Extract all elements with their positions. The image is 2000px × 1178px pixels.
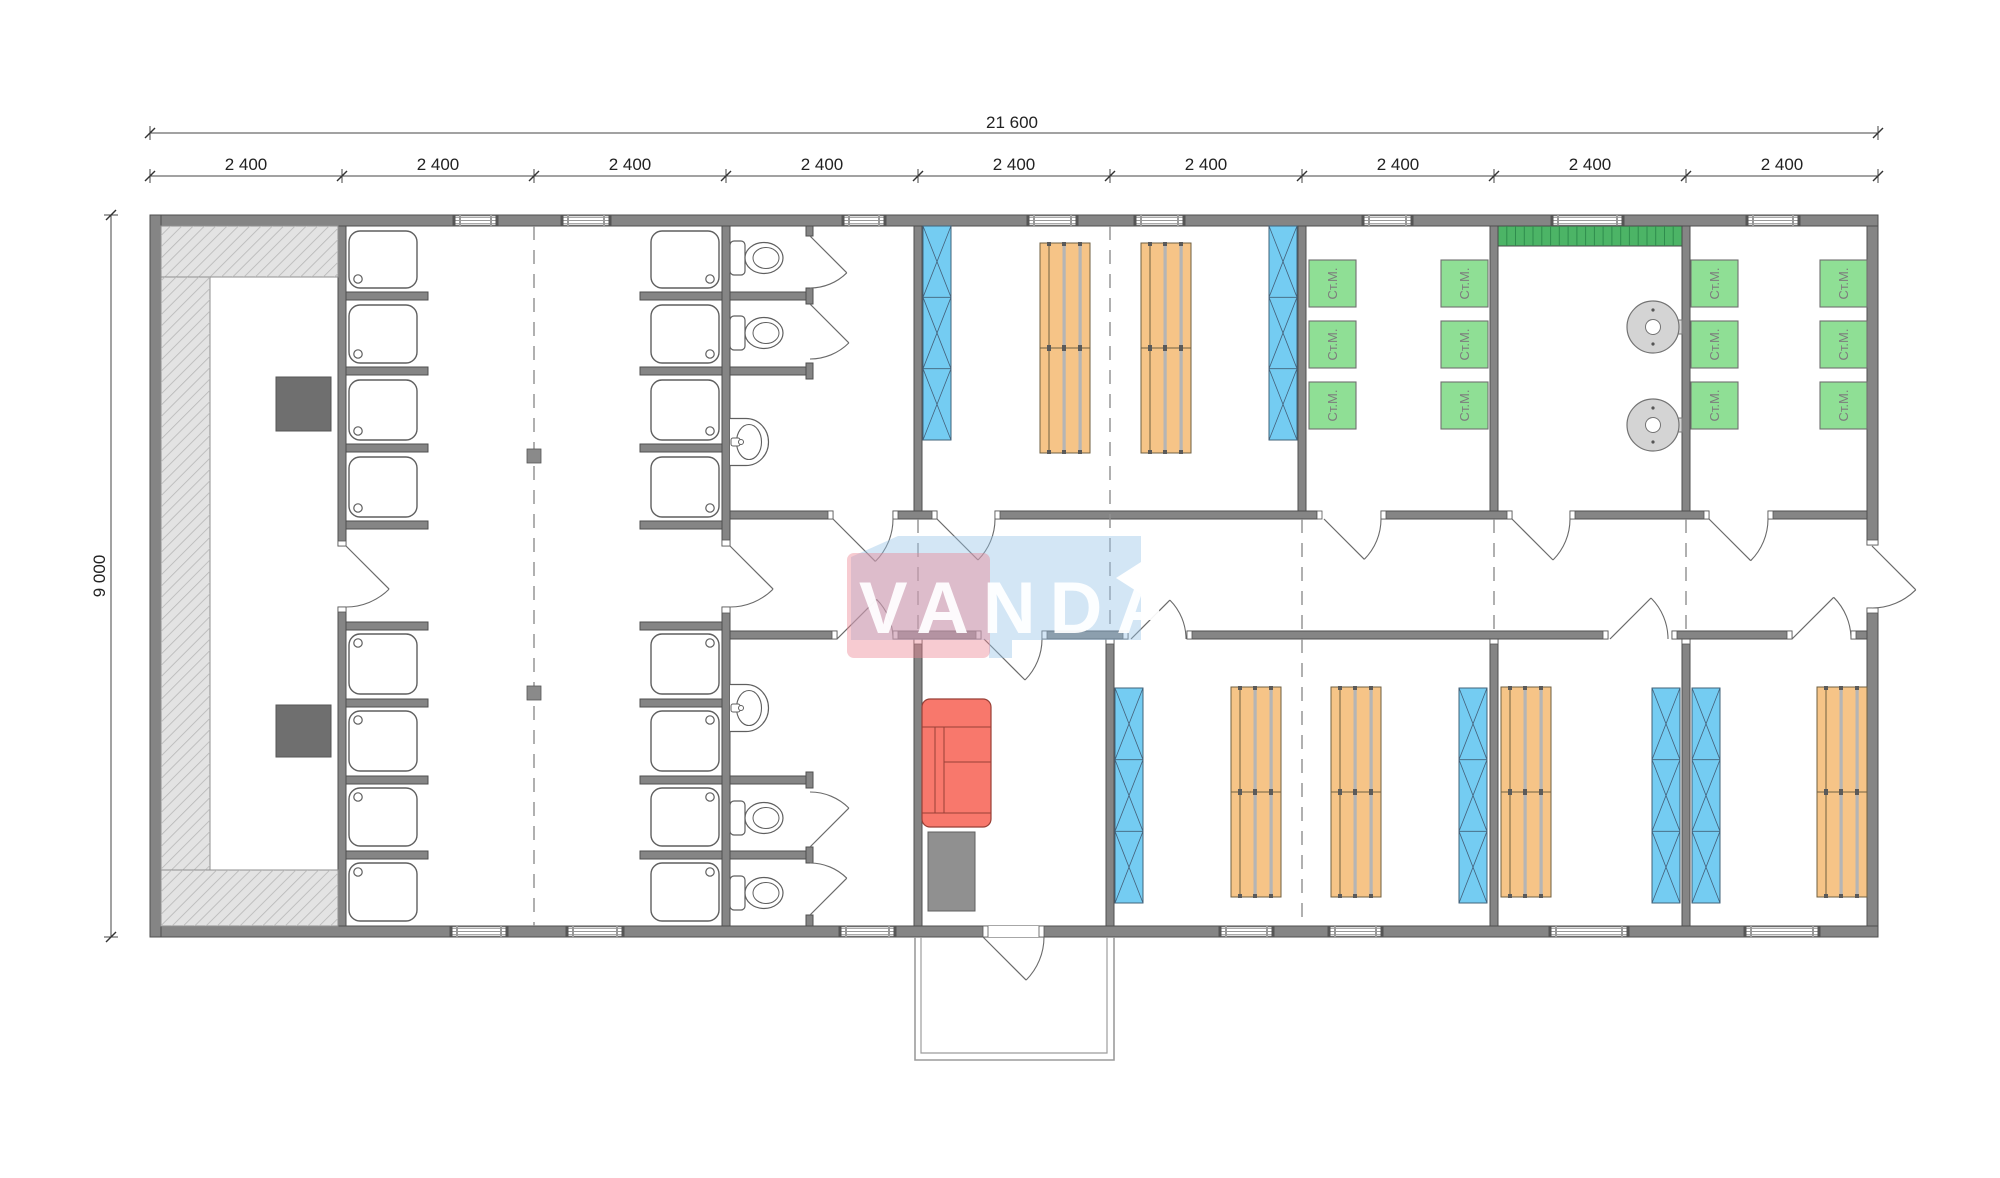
svg-text:Ст.М.: Ст.М. [1457,329,1472,361]
svg-text:2 400: 2 400 [1377,155,1420,174]
svg-text:Ст.М.: Ст.М. [1836,268,1851,300]
svg-text:2 400: 2 400 [1761,155,1804,174]
svg-text:Ст.М.: Ст.М. [1836,329,1851,361]
svg-text:21 600: 21 600 [986,113,1038,132]
svg-text:2 400: 2 400 [1569,155,1612,174]
svg-text:Ст.М.: Ст.М. [1325,390,1340,422]
svg-text:Ст.М.: Ст.М. [1707,268,1722,300]
svg-text:Ст.М.: Ст.М. [1707,390,1722,422]
svg-text:VANDA: VANDA [859,568,1183,649]
svg-text:2 400: 2 400 [609,155,652,174]
svg-text:2 400: 2 400 [225,155,268,174]
svg-text:Ст.М.: Ст.М. [1836,390,1851,422]
svg-text:Ст.М.: Ст.М. [1457,390,1472,422]
svg-text:9 000: 9 000 [90,555,109,598]
svg-text:2 400: 2 400 [993,155,1036,174]
svg-text:2 400: 2 400 [1185,155,1228,174]
svg-text:2 400: 2 400 [801,155,844,174]
svg-text:Ст.М.: Ст.М. [1325,268,1340,300]
svg-text:2 400: 2 400 [417,155,460,174]
svg-text:Ст.М.: Ст.М. [1457,268,1472,300]
svg-text:Ст.М.: Ст.М. [1707,329,1722,361]
svg-text:Ст.М.: Ст.М. [1325,329,1340,361]
